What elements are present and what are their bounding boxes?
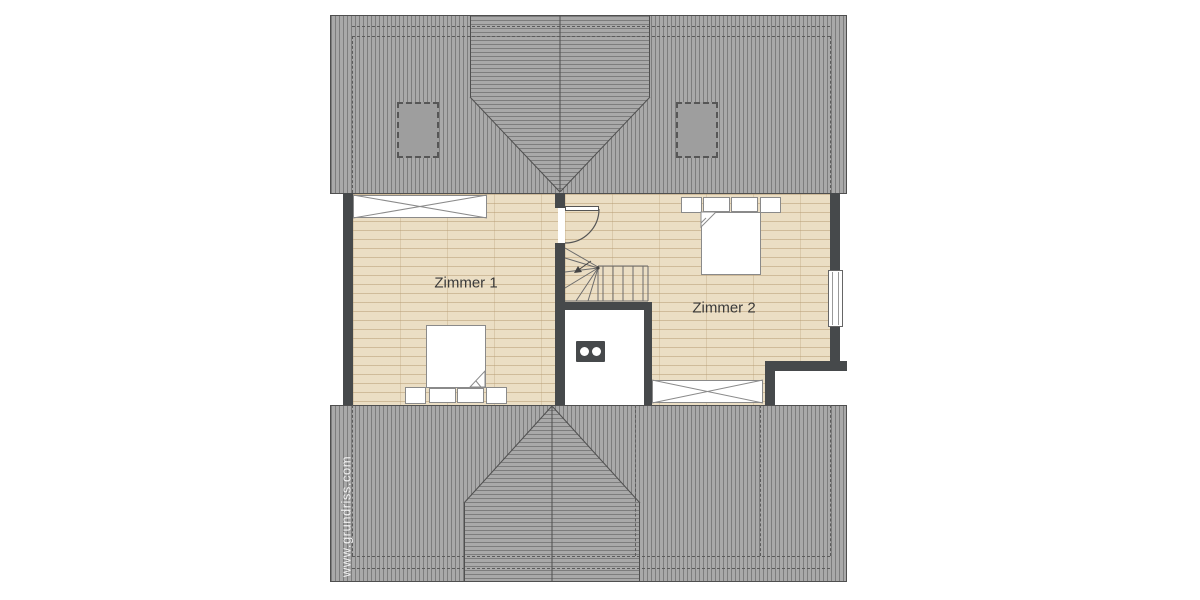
bed-2-pillow-right (731, 197, 758, 212)
wall-centre-lower (555, 243, 565, 405)
wall-notch-vertical (765, 361, 775, 405)
wall-chimney-room-right (644, 302, 652, 405)
wall-centre-upper (555, 193, 565, 208)
bottom-roof-dashed-outline-2 (352, 568, 830, 569)
bottom-roof-dashed-mid1 (635, 405, 636, 556)
room-label-zimmer-2: Zimmer 2 (692, 300, 755, 317)
bed-2-nightstand-right (760, 197, 781, 213)
chimney-flue-left (580, 347, 589, 356)
wall-notch-horizontal (765, 361, 847, 371)
bed-1-pillow-right (457, 388, 484, 403)
wall-left (343, 193, 353, 405)
chimney-flue-right (592, 347, 601, 356)
bottom-roof-dashed-outline-1 (352, 556, 830, 557)
door-leaf (565, 206, 599, 211)
roof-window-left (397, 102, 439, 158)
floor-plan-canvas: Zimmer 1 Zimmer 2 www.grundriss.com (0, 0, 1200, 600)
window-pane-line-1 (832, 272, 833, 325)
top-roof-dashed-left (352, 36, 353, 193)
roof-window-right (676, 102, 718, 158)
bed-1-nightstand-left (405, 387, 426, 404)
bed-1-pillow-left (429, 388, 456, 403)
watermark-text: www.grundriss.com (339, 452, 354, 582)
bed-2-nightstand-left (681, 197, 702, 213)
bottom-roof-dashed-right (830, 405, 831, 556)
top-roof-dashed-outline-1 (352, 26, 830, 27)
room-label-zimmer-1: Zimmer 1 (434, 275, 497, 292)
bottom-roof-dashed-mid2 (760, 405, 761, 556)
bed-1-nightstand-right (486, 387, 507, 404)
wardrobe-zimmer-1 (353, 195, 487, 218)
top-roof-dashed-right (830, 36, 831, 193)
top-roof-dashed-outline-2 (352, 36, 830, 37)
wall-right-upper (830, 193, 840, 270)
wall-chimney-room-top (555, 302, 652, 310)
bed-2-pillow-left (703, 197, 730, 212)
window (828, 270, 843, 327)
window-pane-line-2 (838, 272, 839, 325)
bed-1-mattress (426, 325, 486, 388)
wardrobe-zimmer-2 (652, 380, 763, 403)
bed-2-mattress (701, 212, 761, 275)
right-notch-recess (775, 371, 847, 405)
